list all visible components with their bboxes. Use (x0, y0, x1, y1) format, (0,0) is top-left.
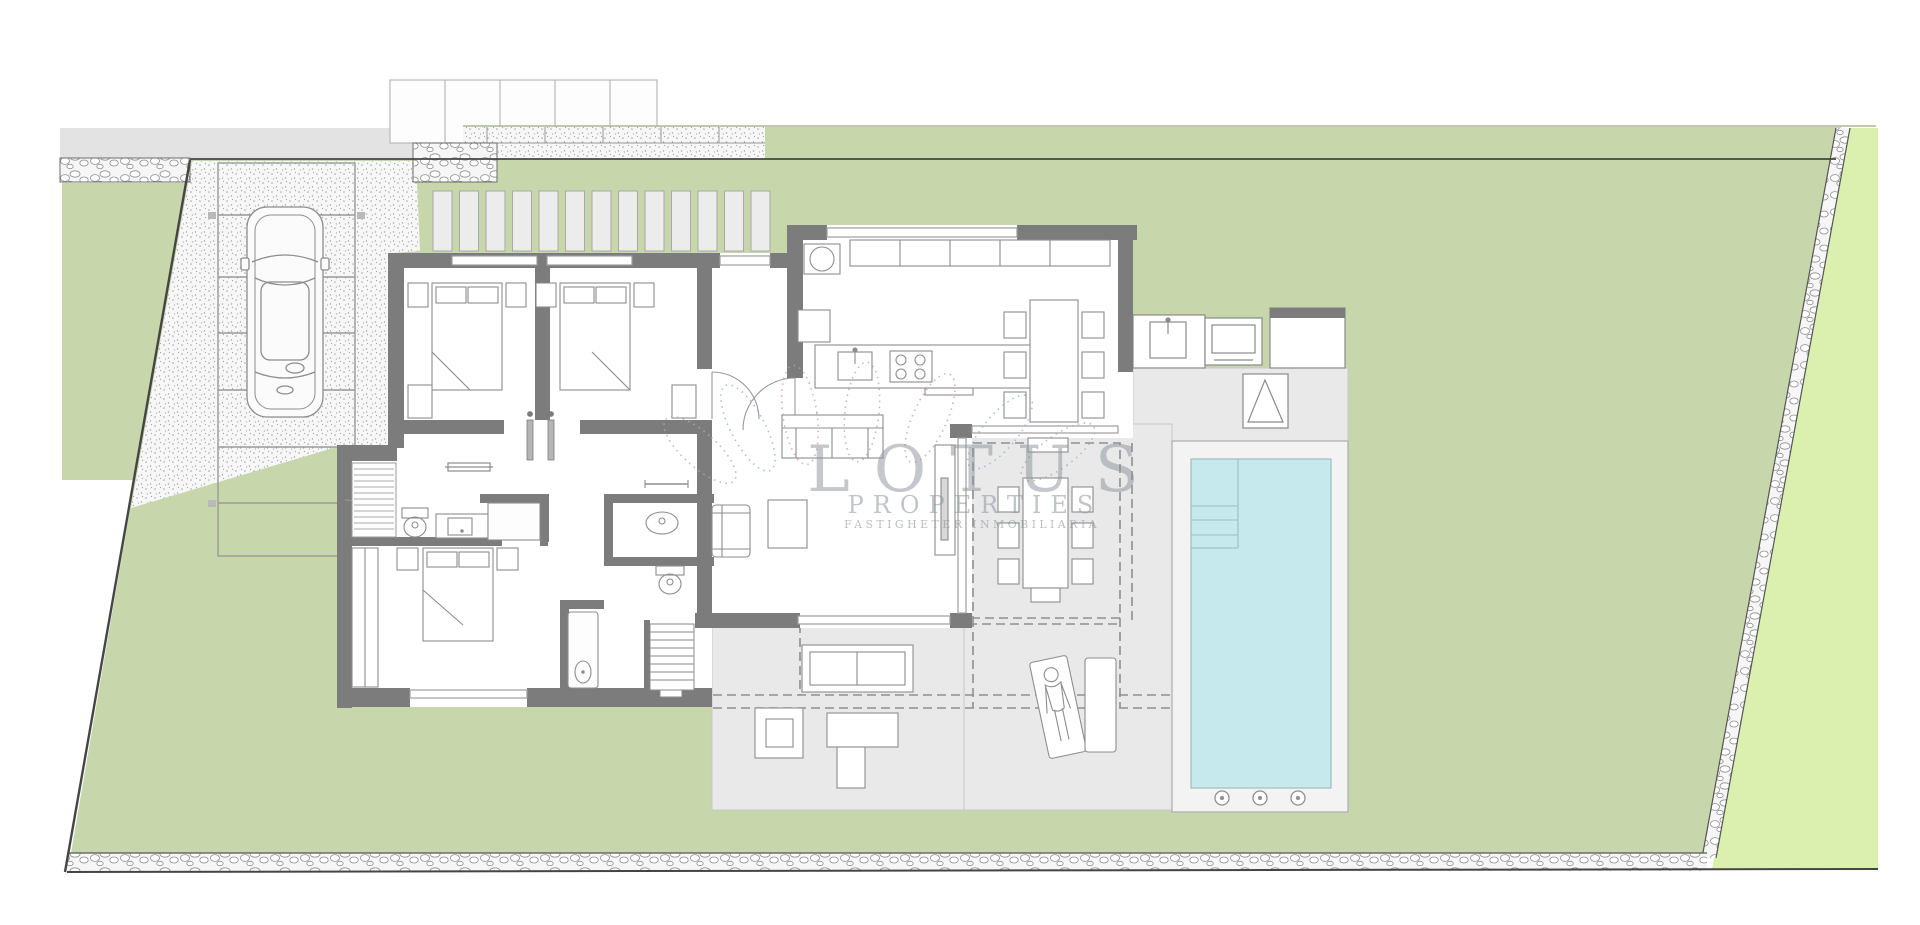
coffee-table (768, 500, 807, 548)
neighbor-driveway (463, 127, 765, 158)
floorplan-canvas: LOTUS PROPERTIES FASTIGHETER INMOBILIARI… (0, 0, 1920, 925)
indoor-dining (1004, 300, 1104, 422)
side-table (755, 708, 803, 758)
pool-area (1172, 441, 1348, 812)
island-step (925, 388, 973, 395)
living-sliding-door (798, 616, 950, 624)
wardrobe (408, 385, 432, 418)
swimming-pool (1191, 459, 1331, 788)
sun-lounger (1085, 658, 1116, 752)
nightstand (634, 283, 654, 307)
nightstand (536, 283, 556, 307)
watermark-subtitle: PROPERTIES (848, 491, 1103, 519)
kitchen-counter (850, 240, 1110, 266)
dining-table (1030, 300, 1078, 422)
kitchen-window (827, 228, 1017, 237)
dining-south-glass (972, 426, 1118, 433)
stone-wall-bottom (67, 853, 1707, 871)
bedroom-1-window (452, 256, 537, 265)
shower-tray (568, 612, 598, 688)
bedroom-2-window (547, 256, 632, 265)
oven (804, 244, 840, 274)
garden-upper-band (765, 127, 1841, 160)
shower (488, 503, 540, 540)
nightstand (497, 548, 518, 570)
watermark-tagline: FASTIGHETER INMOBILIARIA (844, 518, 1100, 531)
cabinet (798, 310, 830, 342)
stone-wall-top-left (60, 158, 190, 182)
wardrobe (672, 385, 696, 418)
entry-door-glass (720, 256, 770, 265)
shower-room (568, 612, 598, 688)
car-icon (241, 207, 329, 417)
armchair (712, 505, 750, 557)
master-sliding-door (410, 690, 527, 698)
stairs (650, 624, 694, 697)
washbasin (646, 512, 678, 534)
nightstand (408, 283, 428, 307)
laundry-closet (352, 463, 396, 537)
stone-wall-gate-pillar (413, 143, 497, 182)
nightstand (506, 283, 526, 307)
outdoor-shower (1243, 374, 1288, 428)
floorplan-svg: LOTUS PROPERTIES FASTIGHETER INMOBILIARI… (0, 0, 1920, 925)
nightstand (397, 548, 418, 570)
outdoor-sofa (802, 645, 913, 692)
